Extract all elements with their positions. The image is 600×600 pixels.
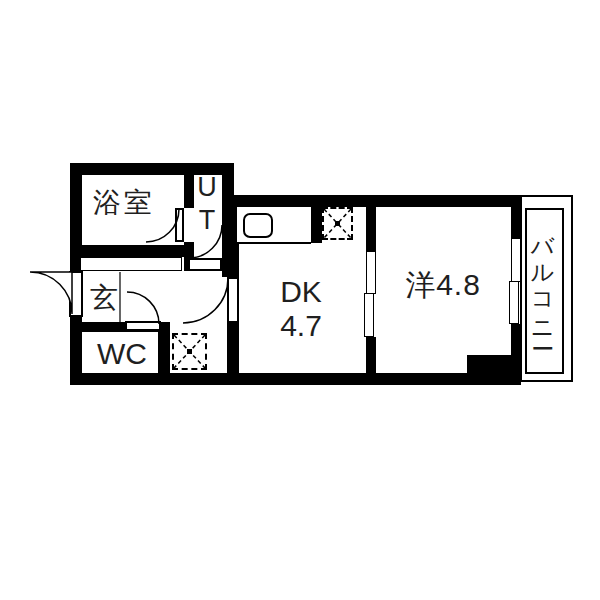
- label-bathroom: 浴室: [74, 188, 174, 217]
- label-entrance: 玄: [84, 283, 124, 312]
- window-panel-2: [509, 281, 519, 324]
- label-dk-area: 4.7: [271, 310, 331, 342]
- entrance-door-swing-icon: [30, 272, 72, 314]
- shoe-cabinet: [80, 257, 182, 271]
- refrigerator-space-icon: [322, 207, 353, 240]
- label-utility: UT: [195, 171, 219, 237]
- floor-plan: 浴室 UT 玄 WC DK 4.7 洋4.8 バルコニー: [0, 0, 600, 600]
- wall-left-upper: [70, 163, 82, 272]
- wall-kitchen-pillar: [311, 207, 322, 243]
- wc-door-leaf: [125, 321, 161, 331]
- wall-bottom: [70, 373, 521, 385]
- wall-dk-western-upper: [366, 207, 376, 252]
- ut-door-leaf: [188, 258, 222, 271]
- wall-bathroom-bottom: [82, 245, 184, 257]
- entrance-door-leaf: [69, 271, 83, 317]
- label-western-room: 洋4.8: [393, 269, 493, 301]
- dk-door-swing-icon: [183, 278, 228, 323]
- kitchen-sink-icon: [243, 213, 273, 238]
- wall-bathroom-ut-upper: [184, 175, 194, 208]
- wall-dk-western-lower: [366, 337, 376, 373]
- wall-dk-left-lower: [227, 323, 239, 373]
- window-panel-1: [511, 238, 521, 282]
- label-toilet: WC: [92, 338, 152, 370]
- wc-door-swing-icon: [127, 292, 159, 324]
- label-balcony: バルコニー: [531, 220, 555, 365]
- pillar-western-corner: [467, 355, 521, 373]
- dk-door-leaf: [227, 277, 239, 323]
- washing-machine-space-icon: [172, 333, 207, 370]
- sliding-door-panel-1: [366, 251, 376, 294]
- label-dk: DK: [271, 276, 331, 308]
- wall-top-main: [232, 195, 521, 207]
- sliding-door-panel-2: [364, 293, 374, 337]
- bathroom-door-leaf: [175, 208, 184, 242]
